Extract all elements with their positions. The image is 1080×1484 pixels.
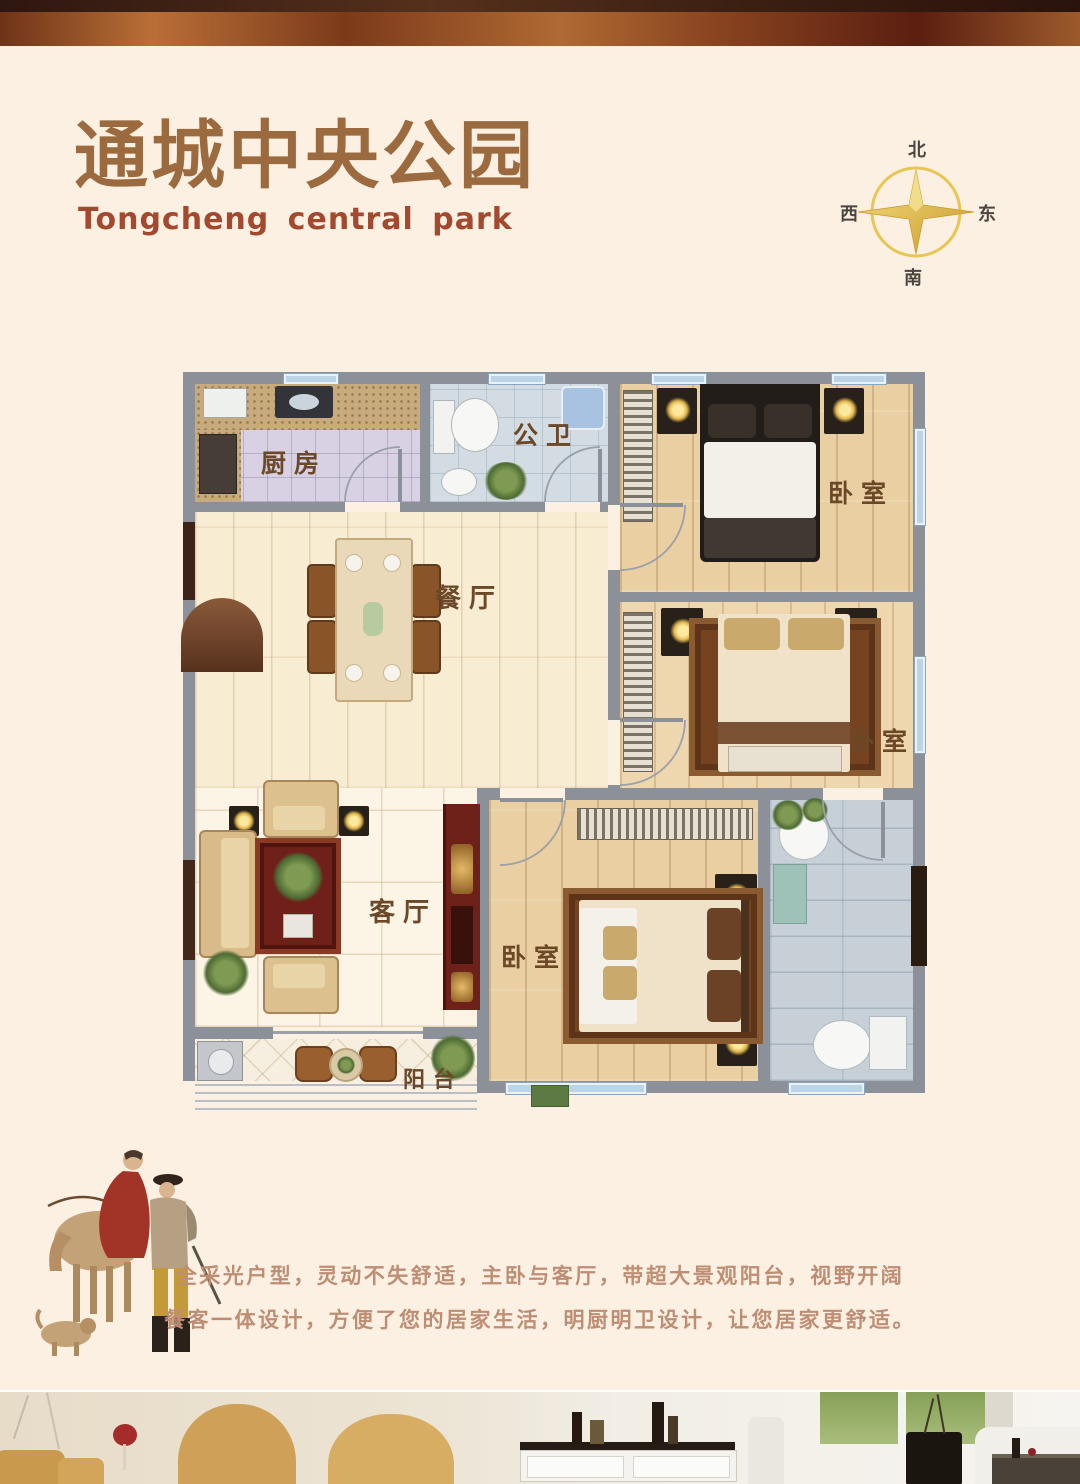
wall-branch-2 (46, 1392, 60, 1449)
dog-tail (37, 1310, 42, 1328)
wine-bottle (1012, 1438, 1020, 1458)
foreground-chair-2 (58, 1458, 104, 1484)
mbath-door-arc (823, 800, 883, 860)
rider-red-cloak (99, 1171, 150, 1258)
dog-leg-2 (74, 1342, 79, 1356)
window-greenery (820, 1392, 990, 1444)
door-leaves (400, 449, 883, 858)
dining-chair-photo-2 (328, 1414, 454, 1484)
compass-south-label: 南 (904, 264, 922, 290)
compass-north-label: 北 (908, 136, 926, 162)
donkey-leg-3 (106, 1266, 113, 1322)
dark-floor-vase (906, 1432, 962, 1484)
interior-photo-strip (0, 1390, 1080, 1484)
donkey-leg-1 (73, 1264, 80, 1322)
compass-star-facet (909, 170, 923, 212)
decor-bottle-2 (590, 1420, 604, 1444)
description-line-2: 餐客一体设计，方便了您的居家生活，明厨明卫设计，让您居家更舒适。 (120, 1304, 960, 1334)
foreground-chair-1 (0, 1450, 65, 1484)
wine-glass-bowl (113, 1424, 137, 1446)
cabinet-drawer-1 (527, 1456, 624, 1478)
top-copper-bar (0, 0, 1080, 46)
cabinet-drawer-2 (633, 1456, 730, 1478)
page-title: 通城中央公园 (74, 96, 536, 203)
compass-west-label: 西 (840, 200, 858, 226)
compass-east-label: 东 (978, 200, 996, 226)
wall-branch-1 (13, 1395, 29, 1439)
description-line-1: 全采光户型，灵动不失舒适，主卧与客厅，带超大景观阳台，视野开阔 (120, 1260, 960, 1290)
bed1-door-arc (620, 505, 685, 570)
public-bath-door-arc (545, 447, 600, 502)
window-mullion (898, 1392, 906, 1444)
floor-plan: 厨房 公卫 卧室 卧室 (183, 372, 925, 1140)
glass-table (992, 1454, 1080, 1484)
wine-glass-stem (123, 1444, 126, 1470)
flyer-page: 通城中央公园 Tongcheng central park 北 西 东 南 (0, 0, 1080, 1484)
top-bar-shadow (0, 0, 1080, 12)
master-door-arc (500, 800, 565, 865)
decor-bottle-3 (652, 1402, 664, 1444)
decor-bottle-1 (572, 1412, 582, 1444)
description-block: 全采光户型，灵动不失舒适，主卧与客厅，带超大景观阳台，视野开阔 餐客一体设计，方… (120, 1260, 960, 1348)
bed2-door-arc (620, 720, 685, 785)
compass: 北 西 东 南 (838, 136, 998, 294)
tv-cabinet-photo (520, 1450, 737, 1482)
kitchen-door-arc (345, 447, 400, 502)
dining-chair-photo-1 (178, 1404, 296, 1484)
sancho-head (159, 1182, 175, 1198)
door-arcs (345, 447, 883, 865)
page-subtitle: Tongcheng central park (78, 202, 513, 237)
wine-glass-small (1028, 1448, 1036, 1456)
dog-head (80, 1318, 96, 1334)
sancho-arm (186, 1204, 197, 1242)
donkey-leg-2 (90, 1266, 97, 1314)
door-arcs-overlay (183, 372, 925, 1140)
dog-leg-1 (52, 1342, 57, 1356)
white-pillar-vase (748, 1417, 784, 1484)
decor-bottle-4 (668, 1416, 678, 1444)
